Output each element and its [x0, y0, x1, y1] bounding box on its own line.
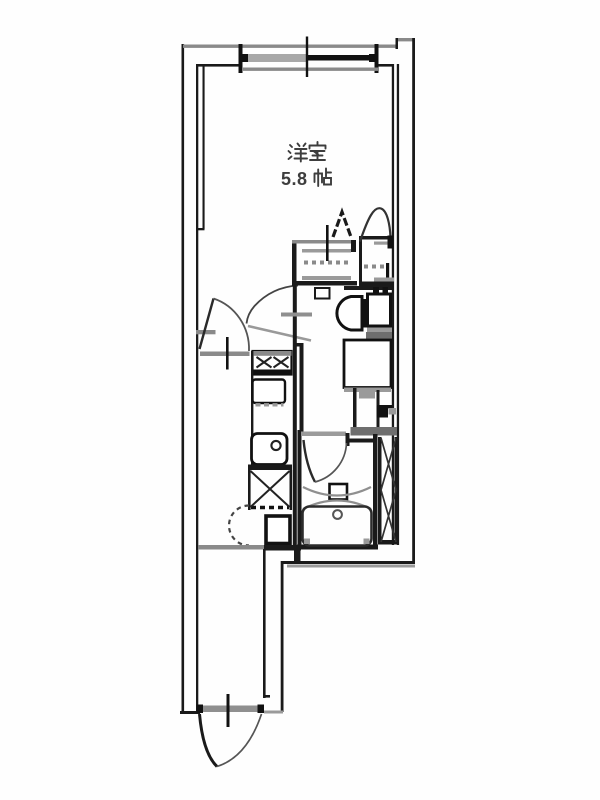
svg-text:5.8: 5.8 — [281, 169, 308, 189]
